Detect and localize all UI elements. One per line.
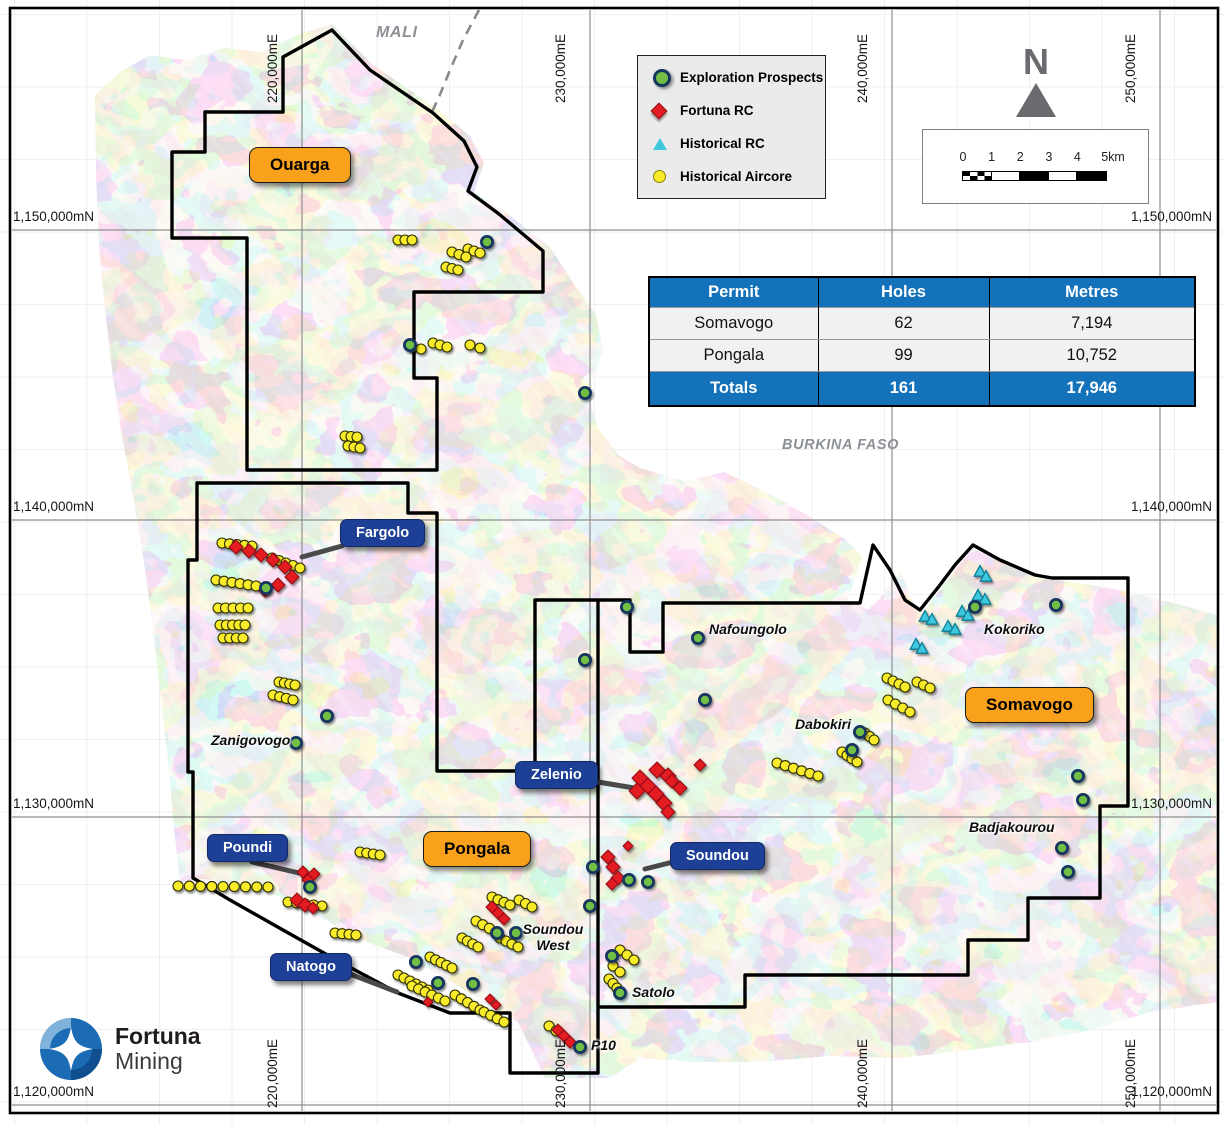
legend-label: Exploration Prospects xyxy=(680,70,823,85)
aircore-hole-marker xyxy=(229,882,239,892)
legend-box: Exploration Prospects Fortuna RC Histori… xyxy=(637,55,826,199)
exploration-prospect-marker xyxy=(410,956,421,967)
prospect-label-nafoungolo: Nafoungolo xyxy=(709,621,787,637)
exploration-prospect-marker xyxy=(614,987,625,998)
northing-label-right: 1,150,000mN xyxy=(1102,209,1212,224)
prospect-label-satolo: Satolo xyxy=(632,984,675,1000)
north-letter: N xyxy=(1006,44,1066,80)
easting-label-top: 230,000mE xyxy=(553,19,569,103)
aircore-hole-marker xyxy=(263,882,273,892)
aircore-hole-marker xyxy=(252,882,262,892)
exploration-prospect-marker xyxy=(1062,866,1073,877)
callout-zelenio: Zelenio xyxy=(515,761,598,789)
cell-totals-metres: 17,946 xyxy=(989,372,1195,407)
exploration-prospect-marker xyxy=(1056,842,1067,853)
exploration-prospect-marker xyxy=(1072,770,1083,781)
north-arrow: N xyxy=(1006,44,1066,117)
drill-statistics-table: Permit Holes Metres Somavogo 62 7,194 Po… xyxy=(648,276,1196,407)
red-diamond-icon xyxy=(651,102,668,119)
table-row: Somavogo 62 7,194 xyxy=(649,308,1195,340)
aircore-hole-marker xyxy=(240,620,250,630)
north-arrow-icon xyxy=(1016,83,1056,117)
scale-segment xyxy=(1049,172,1078,180)
aircore-hole-marker xyxy=(475,343,485,353)
exploration-prospect-marker xyxy=(699,694,710,705)
cell-metres: 7,194 xyxy=(989,308,1195,340)
exploration-prospect-marker xyxy=(290,737,301,748)
exploration-prospect-marker xyxy=(491,927,502,938)
scale-tick: 5km xyxy=(1096,150,1130,164)
exploration-prospect-marker xyxy=(1050,599,1061,610)
aircore-hole-marker xyxy=(505,900,515,910)
scale-bar-box: 0 1 2 3 4 5km xyxy=(922,129,1149,204)
prospect-label-kokoriko: Kokoriko xyxy=(984,621,1045,637)
legend-label: Historical Aircore xyxy=(680,169,792,184)
country-label-burkina-faso: BURKINA FASO xyxy=(782,437,899,453)
aircore-hole-marker xyxy=(615,967,625,977)
col-header-permit: Permit xyxy=(649,277,818,308)
aircore-hole-marker xyxy=(173,881,183,891)
aircore-hole-marker xyxy=(243,603,253,613)
prospect-label-soundou-west: Soundou West xyxy=(514,921,592,953)
exploration-prospect-marker xyxy=(623,874,634,885)
easting-label-top: 250,000mE xyxy=(1123,19,1139,103)
col-header-holes: Holes xyxy=(818,277,989,308)
aircore-hole-marker xyxy=(375,850,385,860)
permit-label-pongala: Pongala xyxy=(423,831,531,867)
scale-segment xyxy=(963,172,992,180)
exploration-prospect-marker xyxy=(642,876,653,887)
northing-label-right: 1,140,000mN xyxy=(1102,499,1212,514)
easting-label-bottom: 230,000mE xyxy=(553,1024,569,1108)
logo-text-mining: Mining xyxy=(115,1049,201,1074)
callout-soundou: Soundou xyxy=(670,842,765,870)
aircore-hole-marker xyxy=(184,881,194,891)
scale-tick: 3 xyxy=(1039,150,1059,164)
exploration-prospect-marker xyxy=(854,726,865,737)
yellow-circle-icon xyxy=(653,170,666,183)
prospect-label-dabokiri: Dabokiri xyxy=(795,716,851,732)
aircore-hole-marker xyxy=(355,443,365,453)
exploration-prospect-marker xyxy=(321,710,332,721)
aircore-hole-marker xyxy=(813,771,823,781)
aircore-hole-marker xyxy=(290,680,300,690)
northing-label-left: 1,130,000mN xyxy=(13,796,94,811)
map-stage: MALI BURKINA FASO Ouarga Pongala Somavog… xyxy=(0,0,1224,1125)
callout-natogo: Natogo xyxy=(270,953,352,981)
northing-label-left: 1,150,000mN xyxy=(13,209,94,224)
northing-label-right: 1,120,000mN xyxy=(1102,1084,1212,1099)
exploration-prospect-marker xyxy=(481,236,492,247)
exploration-prospect-marker xyxy=(467,978,478,989)
logo-text-fortuna: Fortuna xyxy=(115,1024,201,1049)
cell-permit: Pongala xyxy=(649,340,818,372)
exploration-prospect-marker xyxy=(574,1041,585,1052)
easting-label-bottom: 240,000mE xyxy=(855,1024,871,1108)
northing-label-left: 1,140,000mN xyxy=(13,499,94,514)
exploration-prospect-marker xyxy=(304,881,315,892)
scale-tick: 1 xyxy=(982,150,1002,164)
aircore-hole-marker xyxy=(453,265,463,275)
aircore-hole-marker xyxy=(238,633,248,643)
prospect-label-badjakourou: Badjakourou xyxy=(969,819,1055,835)
natogo-leader xyxy=(350,974,397,992)
aircore-hole-marker xyxy=(465,340,475,350)
easting-label-bottom: 220,000mE xyxy=(265,1024,281,1108)
exploration-prospect-marker xyxy=(579,387,590,398)
table-row: Pongala 99 10,752 xyxy=(649,340,1195,372)
exploration-prospect-marker xyxy=(846,744,857,755)
permit-label-ouarga: Ouarga xyxy=(249,147,351,183)
aircore-hole-marker xyxy=(196,881,206,891)
callout-fargolo: Fargolo xyxy=(340,519,425,547)
cell-permit: Somavogo xyxy=(649,308,818,340)
aircore-hole-marker xyxy=(440,996,450,1006)
legend-label: Fortuna RC xyxy=(680,103,754,118)
aircore-hole-marker xyxy=(900,682,910,692)
easting-label-top: 240,000mE xyxy=(855,19,871,103)
aircore-hole-marker xyxy=(288,695,298,705)
legend-item-exploration-prospects: Exploration Prospects xyxy=(638,61,825,94)
callout-poundi: Poundi xyxy=(207,834,288,862)
northing-label-left: 1,120,000mN xyxy=(13,1084,94,1099)
table-totals-row: Totals 161 17,946 xyxy=(649,372,1195,407)
exploration-prospect-marker xyxy=(969,601,980,612)
aircore-hole-marker xyxy=(852,757,862,767)
aircore-hole-marker xyxy=(473,942,483,952)
col-header-metres: Metres xyxy=(989,277,1195,308)
aircore-hole-marker xyxy=(475,248,485,258)
scale-segment xyxy=(1020,172,1049,180)
aircore-hole-marker xyxy=(869,735,879,745)
aircore-hole-marker xyxy=(461,252,471,262)
northing-label-right: 1,130,000mN xyxy=(1102,796,1212,811)
exploration-prospect-marker xyxy=(579,654,590,665)
legend-label: Historical RC xyxy=(680,136,765,151)
legend-item-fortuna-rc: Fortuna RC xyxy=(638,94,825,127)
cell-totals-holes: 161 xyxy=(818,372,989,407)
cyan-triangle-icon xyxy=(653,138,667,150)
aircore-hole-marker xyxy=(416,344,426,354)
cell-metres: 10,752 xyxy=(989,340,1195,372)
exploration-prospect-marker xyxy=(404,339,415,350)
cell-holes: 99 xyxy=(818,340,989,372)
exploration-prospect-marker xyxy=(606,950,617,961)
aircore-hole-marker xyxy=(629,955,639,965)
exploration-prospect-marker xyxy=(432,977,443,988)
exploration-prospect-marker xyxy=(587,861,598,872)
permit-label-somavogo: Somavogo xyxy=(965,687,1094,723)
prospect-circle-icon xyxy=(653,69,671,87)
aircore-hole-marker xyxy=(295,563,305,573)
prospect-label-p10: P10 xyxy=(591,1037,616,1053)
easting-label-top: 220,000mE xyxy=(265,19,281,103)
scale-segment xyxy=(1077,172,1106,180)
fortuna-logo-icon xyxy=(38,1016,104,1082)
exploration-prospect-marker xyxy=(621,601,632,612)
aircore-hole-marker xyxy=(317,901,327,911)
exploration-prospect-marker xyxy=(584,900,595,911)
aircore-hole-marker xyxy=(442,342,452,352)
scale-bar xyxy=(962,171,1107,181)
aircore-hole-marker xyxy=(499,1017,509,1027)
aircore-hole-marker xyxy=(925,683,935,693)
cell-totals-label: Totals xyxy=(649,372,818,407)
aircore-hole-marker xyxy=(527,902,537,912)
scale-tick: 0 xyxy=(953,150,973,164)
cell-holes: 62 xyxy=(818,308,989,340)
exploration-prospect-marker xyxy=(692,632,703,643)
aircore-hole-marker xyxy=(351,930,361,940)
mali-border-dashed-line xyxy=(431,10,479,114)
scale-segment xyxy=(992,172,1021,180)
exploration-prospect-marker xyxy=(260,582,271,593)
scale-tick: 2 xyxy=(1010,150,1030,164)
table-header-row: Permit Holes Metres xyxy=(649,277,1195,308)
aircore-hole-marker xyxy=(447,963,457,973)
aircore-hole-marker xyxy=(407,235,417,245)
fortuna-mining-logo: Fortuna Mining xyxy=(38,1016,201,1082)
exploration-prospect-marker xyxy=(1077,794,1088,805)
scale-tick: 4 xyxy=(1067,150,1087,164)
country-label-mali: MALI xyxy=(376,24,418,42)
aircore-hole-marker xyxy=(207,881,217,891)
aircore-hole-marker xyxy=(352,432,362,442)
legend-item-historical-rc: Historical RC xyxy=(638,127,825,160)
prospect-label-zanigovogo: Zanigovogo xyxy=(211,732,290,748)
aircore-hole-marker xyxy=(241,882,251,892)
legend-item-historical-aircore: Historical Aircore xyxy=(638,160,825,193)
aircore-hole-marker xyxy=(218,882,228,892)
aircore-hole-marker xyxy=(905,707,915,717)
